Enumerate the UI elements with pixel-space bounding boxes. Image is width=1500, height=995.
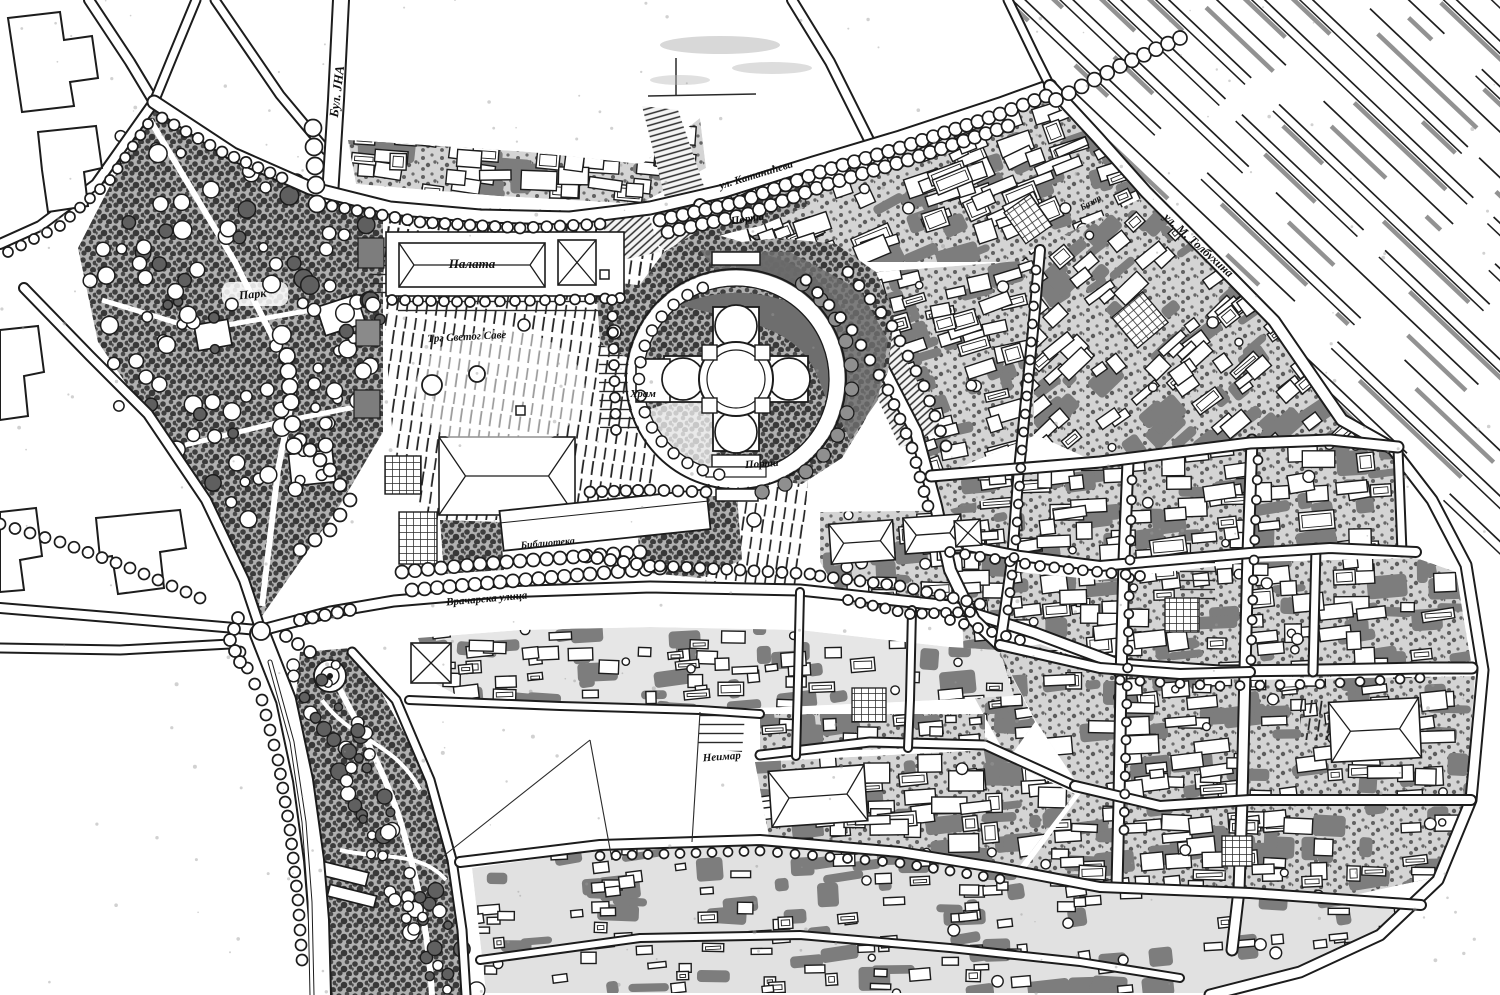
svg-text:Храм: Храм [629, 388, 656, 400]
svg-text:Палата: Палата [448, 256, 496, 271]
svg-text:Порта: Порта [744, 457, 780, 471]
